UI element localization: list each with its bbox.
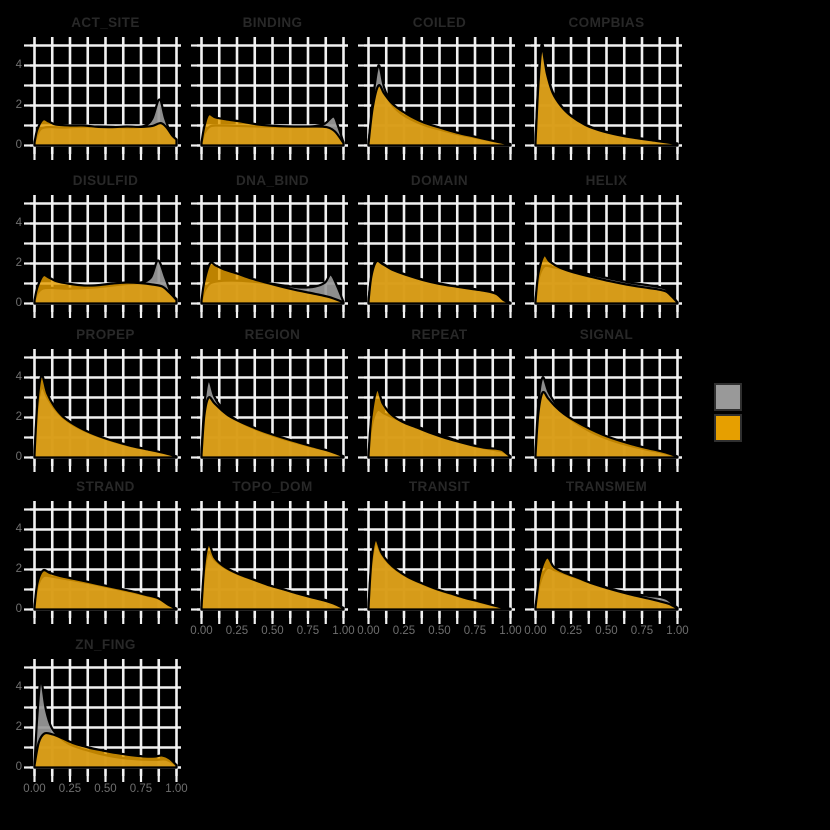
facet-panel-signal [524, 349, 689, 475]
facet-panel-domain [357, 195, 522, 321]
facet-panel-transit [357, 501, 522, 627]
facet-title-zn_fing: ZN_FING [20, 635, 191, 655]
facet-title-domain: DOMAIN [354, 171, 525, 191]
facet-title-binding: BINDING [187, 13, 358, 33]
y-tick-label: 2 [0, 99, 22, 111]
x-tick-label: 0.25 [59, 783, 81, 795]
y-tick-label: 4 [0, 217, 22, 229]
facet-panel-zn_fing [23, 659, 188, 785]
x-tick-label: 0.50 [261, 625, 283, 637]
facet-title-dna_bind: DNA_BIND [187, 171, 358, 191]
y-tick-label: 0 [0, 603, 22, 615]
facet-panel-binding [190, 37, 355, 163]
facet-title-act_site: ACT_SITE [20, 13, 191, 33]
facet-panel-coiled [357, 37, 522, 163]
y-tick-label: 4 [0, 371, 22, 383]
x-tick-label: 0.50 [94, 783, 116, 795]
facet-title-strand: STRAND [20, 477, 191, 497]
x-tick-label: 0.50 [428, 625, 450, 637]
x-tick-label: 0.75 [631, 625, 653, 637]
x-tick-label: 1.00 [499, 625, 521, 637]
y-tick-label: 4 [0, 523, 22, 535]
facet-title-repeat: REPEAT [354, 325, 525, 345]
y-tick-label: 2 [0, 563, 22, 575]
facet-panel-region [190, 349, 355, 475]
x-tick-label: 1.00 [332, 625, 354, 637]
y-tick-label: 2 [0, 721, 22, 733]
x-tick-label: 1.00 [165, 783, 187, 795]
facet-title-signal: SIGNAL [521, 325, 692, 345]
facet-panel-propep [23, 349, 188, 475]
x-tick-label: 0.75 [130, 783, 152, 795]
y-tick-label: 0 [0, 451, 22, 463]
x-tick-label: 0.00 [23, 783, 45, 795]
y-tick-label: 2 [0, 411, 22, 423]
x-tick-label: 1.00 [666, 625, 688, 637]
y-tick-label: 0 [0, 297, 22, 309]
x-tick-label: 0.00 [190, 625, 212, 637]
y-tick-label: 0 [0, 139, 22, 151]
facet-title-compbias: COMPBIAS [521, 13, 692, 33]
facet-title-transit: TRANSIT [354, 477, 525, 497]
x-tick-label: 0.00 [524, 625, 546, 637]
x-tick-label: 0.75 [297, 625, 319, 637]
x-tick-label: 0.75 [464, 625, 486, 637]
x-tick-label: 0.25 [560, 625, 582, 637]
facet-panel-strand [23, 501, 188, 627]
facet-panel-repeat [357, 349, 522, 475]
facet-panel-helix [524, 195, 689, 321]
facet-title-disulfid: DISULFID [20, 171, 191, 191]
facet-title-coiled: COILED [354, 13, 525, 33]
density-facet-grid: ACT_SITE024BINDINGCOILEDCOMPBIASDISULFID… [0, 0, 830, 830]
x-tick-label: 0.00 [357, 625, 379, 637]
facet-title-helix: HELIX [521, 171, 692, 191]
facet-panel-disulfid [23, 195, 188, 321]
facet-panel-act_site [23, 37, 188, 163]
facet-title-topo_dom: TOPO_DOM [187, 477, 358, 497]
x-tick-label: 0.50 [595, 625, 617, 637]
y-tick-label: 4 [0, 681, 22, 693]
facet-title-propep: PROPEP [20, 325, 191, 345]
facet-title-region: REGION [187, 325, 358, 345]
facet-panel-compbias [524, 37, 689, 163]
facet-title-transmem: TRANSMEM [521, 477, 692, 497]
legend-key-1-swatch [714, 383, 742, 411]
y-tick-label: 2 [0, 257, 22, 269]
facet-panel-dna_bind [190, 195, 355, 321]
x-tick-label: 0.25 [393, 625, 415, 637]
facet-panel-topo_dom [190, 501, 355, 627]
x-tick-label: 0.25 [226, 625, 248, 637]
y-tick-label: 4 [0, 59, 22, 71]
y-tick-label: 0 [0, 761, 22, 773]
legend-key-2-swatch [714, 414, 742, 442]
facet-panel-transmem [524, 501, 689, 627]
